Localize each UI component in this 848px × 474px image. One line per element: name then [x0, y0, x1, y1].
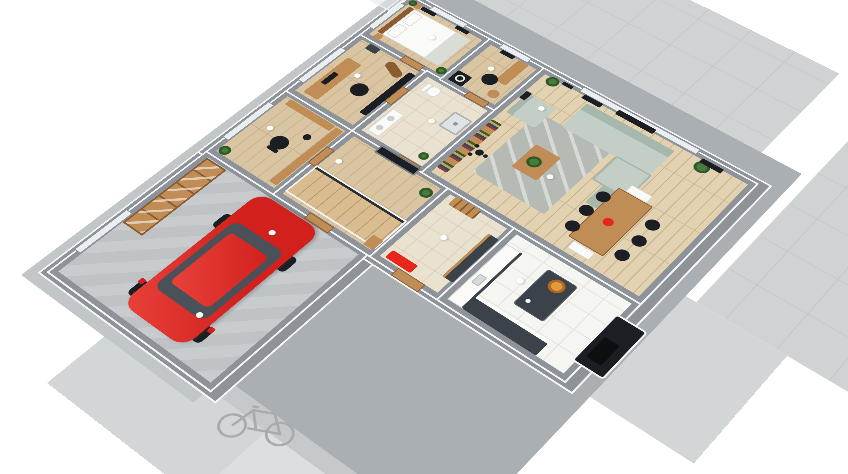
floorplan-render [0, 0, 848, 474]
isometric-plan [0, 0, 848, 474]
